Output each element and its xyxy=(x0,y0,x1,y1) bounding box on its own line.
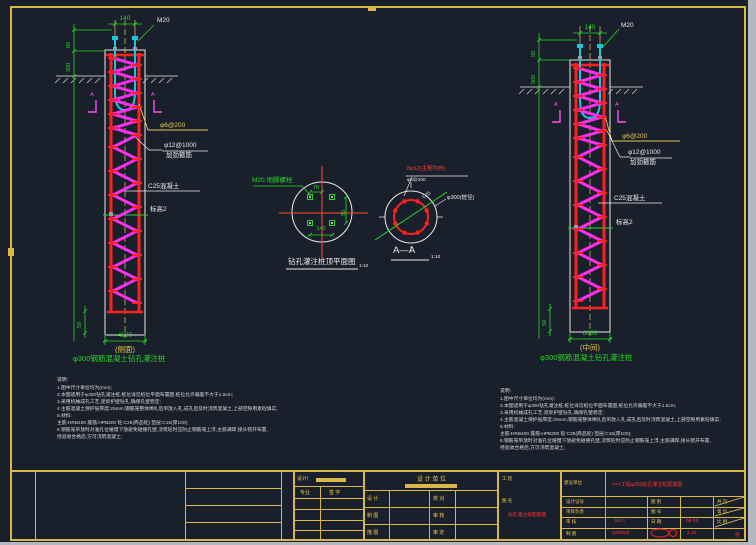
left-pile-toe-dim: 50 xyxy=(77,322,83,328)
tb-cell: 图 别 xyxy=(651,499,661,505)
note-line: 主筋:HRB400 箍筋:HPB300 砼:C25(商品砼) 垫层:C15(厚1… xyxy=(57,420,287,427)
note-line: 1.图中尺寸单位均为(mm); xyxy=(57,385,287,392)
tb-col-major: 专业 xyxy=(300,489,310,496)
note-line: 5.材料: xyxy=(500,424,735,431)
drawing-canvas xyxy=(0,0,756,545)
tb-cell: 比 例 xyxy=(717,519,727,525)
tb-role: 设 计 xyxy=(367,495,378,502)
note-line: 2.本图适用于φ300钻孔灌注桩,桩位详见桩位平面布置图,桩位允许偏差不大于1.… xyxy=(57,392,287,399)
tb-role: 审 核 xyxy=(433,512,444,519)
tb-cell: 图 号 xyxy=(651,509,661,515)
note-line: 经验收合格后,方可浇筑混凝土; xyxy=(500,445,735,452)
plan-caption: 钻孔灌注桩顶平面图 xyxy=(288,258,356,267)
tb-owner-label: 建设单位 xyxy=(564,480,582,486)
note-line: 经验收合格后,方可浇筑混凝土; xyxy=(57,434,287,441)
right-pile-length-dim: 6000 xyxy=(583,330,597,337)
notes-right-title: 说明: xyxy=(500,388,735,395)
aa-scale: 1:10 xyxy=(431,255,440,261)
right-pile-toe-dim: 50 xyxy=(542,320,548,326)
left-pile-section-marker-a1: A xyxy=(90,92,94,98)
cad-viewport: 140 M20 60 200 A A φ6@200 φ12@1000 加劲箍筋 … xyxy=(0,0,756,545)
tb-role: 校 对 xyxy=(433,495,444,502)
tb-cell: 08-06 xyxy=(686,519,698,524)
aa-main-bars-label: 8φ12(主筋均布) xyxy=(407,166,445,172)
tb-name-label: 图 名 xyxy=(502,498,512,504)
tb-role: 描 图 xyxy=(367,529,378,536)
left-pile-bolt-label: M20 xyxy=(157,17,170,24)
note-line: 5.材料: xyxy=(57,413,287,420)
left-pile-dim2: 200 xyxy=(66,63,72,72)
note-line: 3.采用机械成孔工艺,泥浆护壁钻孔,确保孔壁稳定; xyxy=(57,399,287,406)
tb-cell: 1:20 xyxy=(687,531,696,536)
plan-dim-top: 70 xyxy=(313,185,319,191)
left-pile-section-marker-a2: A xyxy=(151,92,155,98)
right-pile-level-label: 标高2 xyxy=(616,219,633,226)
tb-cell: 审 核 xyxy=(566,519,576,525)
note-line: 1.图中尺寸单位均为(mm); xyxy=(500,396,735,403)
aa-spiral-label: φ6@200 xyxy=(407,178,426,184)
right-pile-concrete-label: C25混凝土 xyxy=(614,195,645,202)
right-pile-width-dim: 140 xyxy=(585,24,596,31)
left-pile-width-dim: 140 xyxy=(120,15,131,22)
note-line: 4.主筋混凝土保护层厚度:25mm;钢筋笼整体绑扎后吊放入孔,成孔后及时浇筑混凝… xyxy=(500,417,735,424)
note-line: 6.钢筋笼吊放时对准孔位缓慢下放避免碰撞孔壁,浇筑砼时应防止钢筋笼上浮,主筋满焊… xyxy=(57,427,287,434)
right-pile-caption: φ300钢筋混凝土钻孔灌注桩 xyxy=(540,354,632,363)
left-pile-length-dim: 4300 xyxy=(118,332,132,339)
plan-scale: 1:10 xyxy=(359,264,368,270)
note-line: 6.钢筋笼吊放时对准孔位缓慢下放避免碰撞孔壁,浇筑砼时应防止钢筋笼上浮,主筋满焊… xyxy=(500,438,735,445)
tb-sheet-title: 钻孔灌注桩配筋图 xyxy=(508,511,546,518)
right-pile-section-marker-a1: A xyxy=(554,102,558,108)
tb-project-label: 工 程 xyxy=(502,476,512,482)
tb-sign-head: 设计/ xyxy=(297,475,308,482)
tb-role: 审 定 xyxy=(433,529,444,536)
right-pile-section-marker-a2: A xyxy=(615,102,619,108)
aa-caption: A—A xyxy=(393,246,415,257)
right-pile-bolt-label: M20 xyxy=(621,22,634,29)
plan-bolt-leader-label: M20 地脚螺栓 xyxy=(252,177,292,184)
tb-project-name: ×××工程φ300钻孔灌注桩配筋图 xyxy=(612,481,682,488)
left-pile-drawing xyxy=(55,20,208,345)
tb-cell: 制 图 xyxy=(566,531,576,537)
left-pile-caption: φ300钢筋混凝土钻孔灌注桩 xyxy=(73,355,165,364)
notes-right: 说明: 1.图中尺寸单位均为(mm); 2.本图适用于φ300钻孔灌注桩,桩位详… xyxy=(500,388,735,452)
notes-left: 说明: 1.图中尺寸单位均为(mm); 2.本图适用于φ300钻孔灌注桩,桩位详… xyxy=(57,377,287,441)
left-pile-spiral-label: φ6@200 xyxy=(160,122,185,129)
right-pile-spiral-label: φ6@200 xyxy=(622,133,647,140)
right-pile-dim2: 500 xyxy=(531,75,537,84)
left-pile-dim1: 60 xyxy=(66,42,72,48)
note-line: 4.主筋混凝土保护层厚度:25mm;钢筋笼整体绑扎后吊放入孔,成孔后及时浇筑混凝… xyxy=(57,406,287,413)
right-pile-dim1: 50 xyxy=(531,51,537,57)
note-line: 主筋:HRB400 箍筋:HPB300 砼:C25(商品砼) 垫层:C15(厚1… xyxy=(500,431,735,438)
titleblock-graphics xyxy=(651,497,744,537)
left-pile-concrete-label: C25混凝土 xyxy=(148,183,179,190)
tb-col-sign: 签 字 xyxy=(329,489,340,496)
note-line: 3.采用机械成孔工艺,泥浆护壁钻孔,确保孔壁稳定; xyxy=(500,410,735,417)
tb-cell: 张 xyxy=(735,531,740,538)
right-pile-hoop-label: φ12@1000 xyxy=(628,149,661,156)
aa-diameter-label: φ300(桩径) xyxy=(447,195,474,201)
tb-role: 制 图 xyxy=(367,512,378,519)
plan-dim-bottom: 140 xyxy=(316,226,325,232)
tb-cell: 项目负责 xyxy=(566,509,584,515)
section-aa-drawing xyxy=(375,176,468,260)
left-pile-hoop-label: φ12@1000 xyxy=(164,142,197,149)
plan-dim-right: 90 xyxy=(341,210,347,216)
tb-cell: 设计证号 xyxy=(566,499,584,505)
right-pile-view-tag: (中间) xyxy=(580,344,600,353)
tb-cell: 共 页 xyxy=(717,499,727,505)
tb-design-unit: 设 计 单 位 xyxy=(417,474,446,483)
tb-cell: 2005/06 xyxy=(612,531,629,536)
note-line: 2.本图适用于φ300钻孔灌注桩,桩位详见桩位平面布置图,桩位允许偏差不大于1.… xyxy=(500,403,735,410)
right-pile-hoop-label2: 加劲箍筋 xyxy=(630,159,656,166)
left-pile-hoop-label2: 加劲箍筋 xyxy=(166,152,192,159)
notes-left-title: 说明: xyxy=(57,377,287,384)
tb-cell: 第 页 xyxy=(717,509,727,515)
left-pile-level-label: 标高2 xyxy=(150,206,167,213)
tb-cell: 日 期 xyxy=(651,519,661,525)
tb-cell: No.1 xyxy=(615,519,625,524)
